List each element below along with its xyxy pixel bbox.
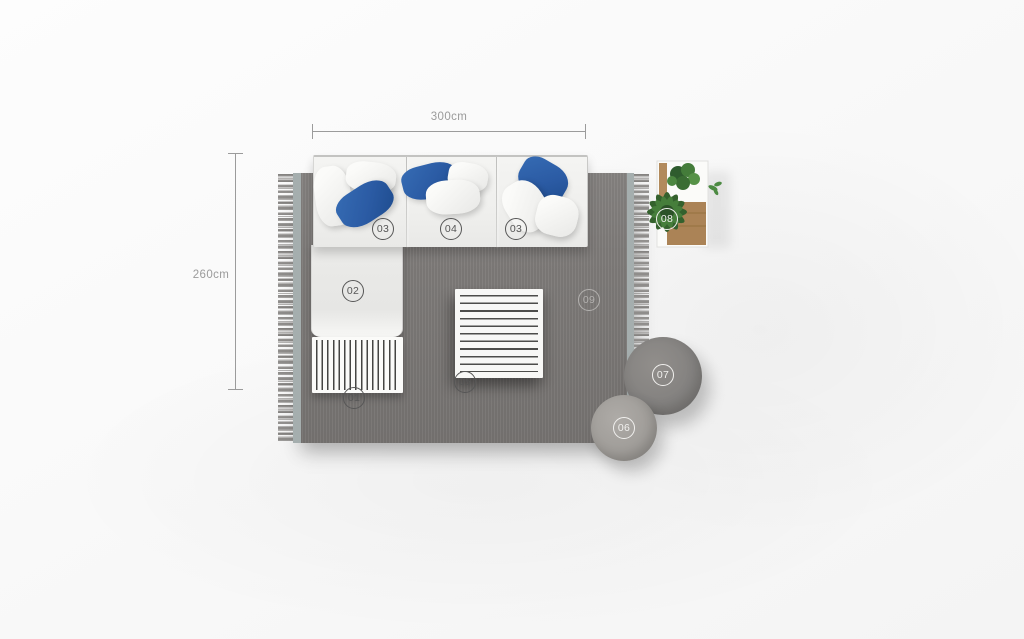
item-badge-05: 05 [454,371,476,393]
item-badge-08: 08 [656,208,678,230]
item-badge-07: 07 [652,364,674,386]
item-badge-06: 06 [613,417,635,439]
item-badge-09: 09 [578,289,600,311]
planter-with-plants [638,150,740,266]
sofa-seat-divider [496,157,497,247]
height-dimension-label: 260cm [186,269,236,281]
width-dimension-line [312,131,586,132]
width-dimension-label: 300cm [312,111,586,123]
striped-bench-slats [316,340,399,390]
item-badge-03-right: 03 [505,218,527,240]
item-badge-04: 04 [440,218,462,240]
item-badge-03-left: 03 [372,218,394,240]
coffee-table-slats [460,295,538,372]
furniture-layout-top-view: 300cm 260cm [0,0,1024,639]
item-badge-01: 01 [343,387,365,409]
rug-fringe-left [278,174,293,442]
coffee-table [455,289,543,378]
striped-bench [312,337,403,393]
height-dimension-line [235,153,236,390]
item-badge-02: 02 [342,280,364,302]
